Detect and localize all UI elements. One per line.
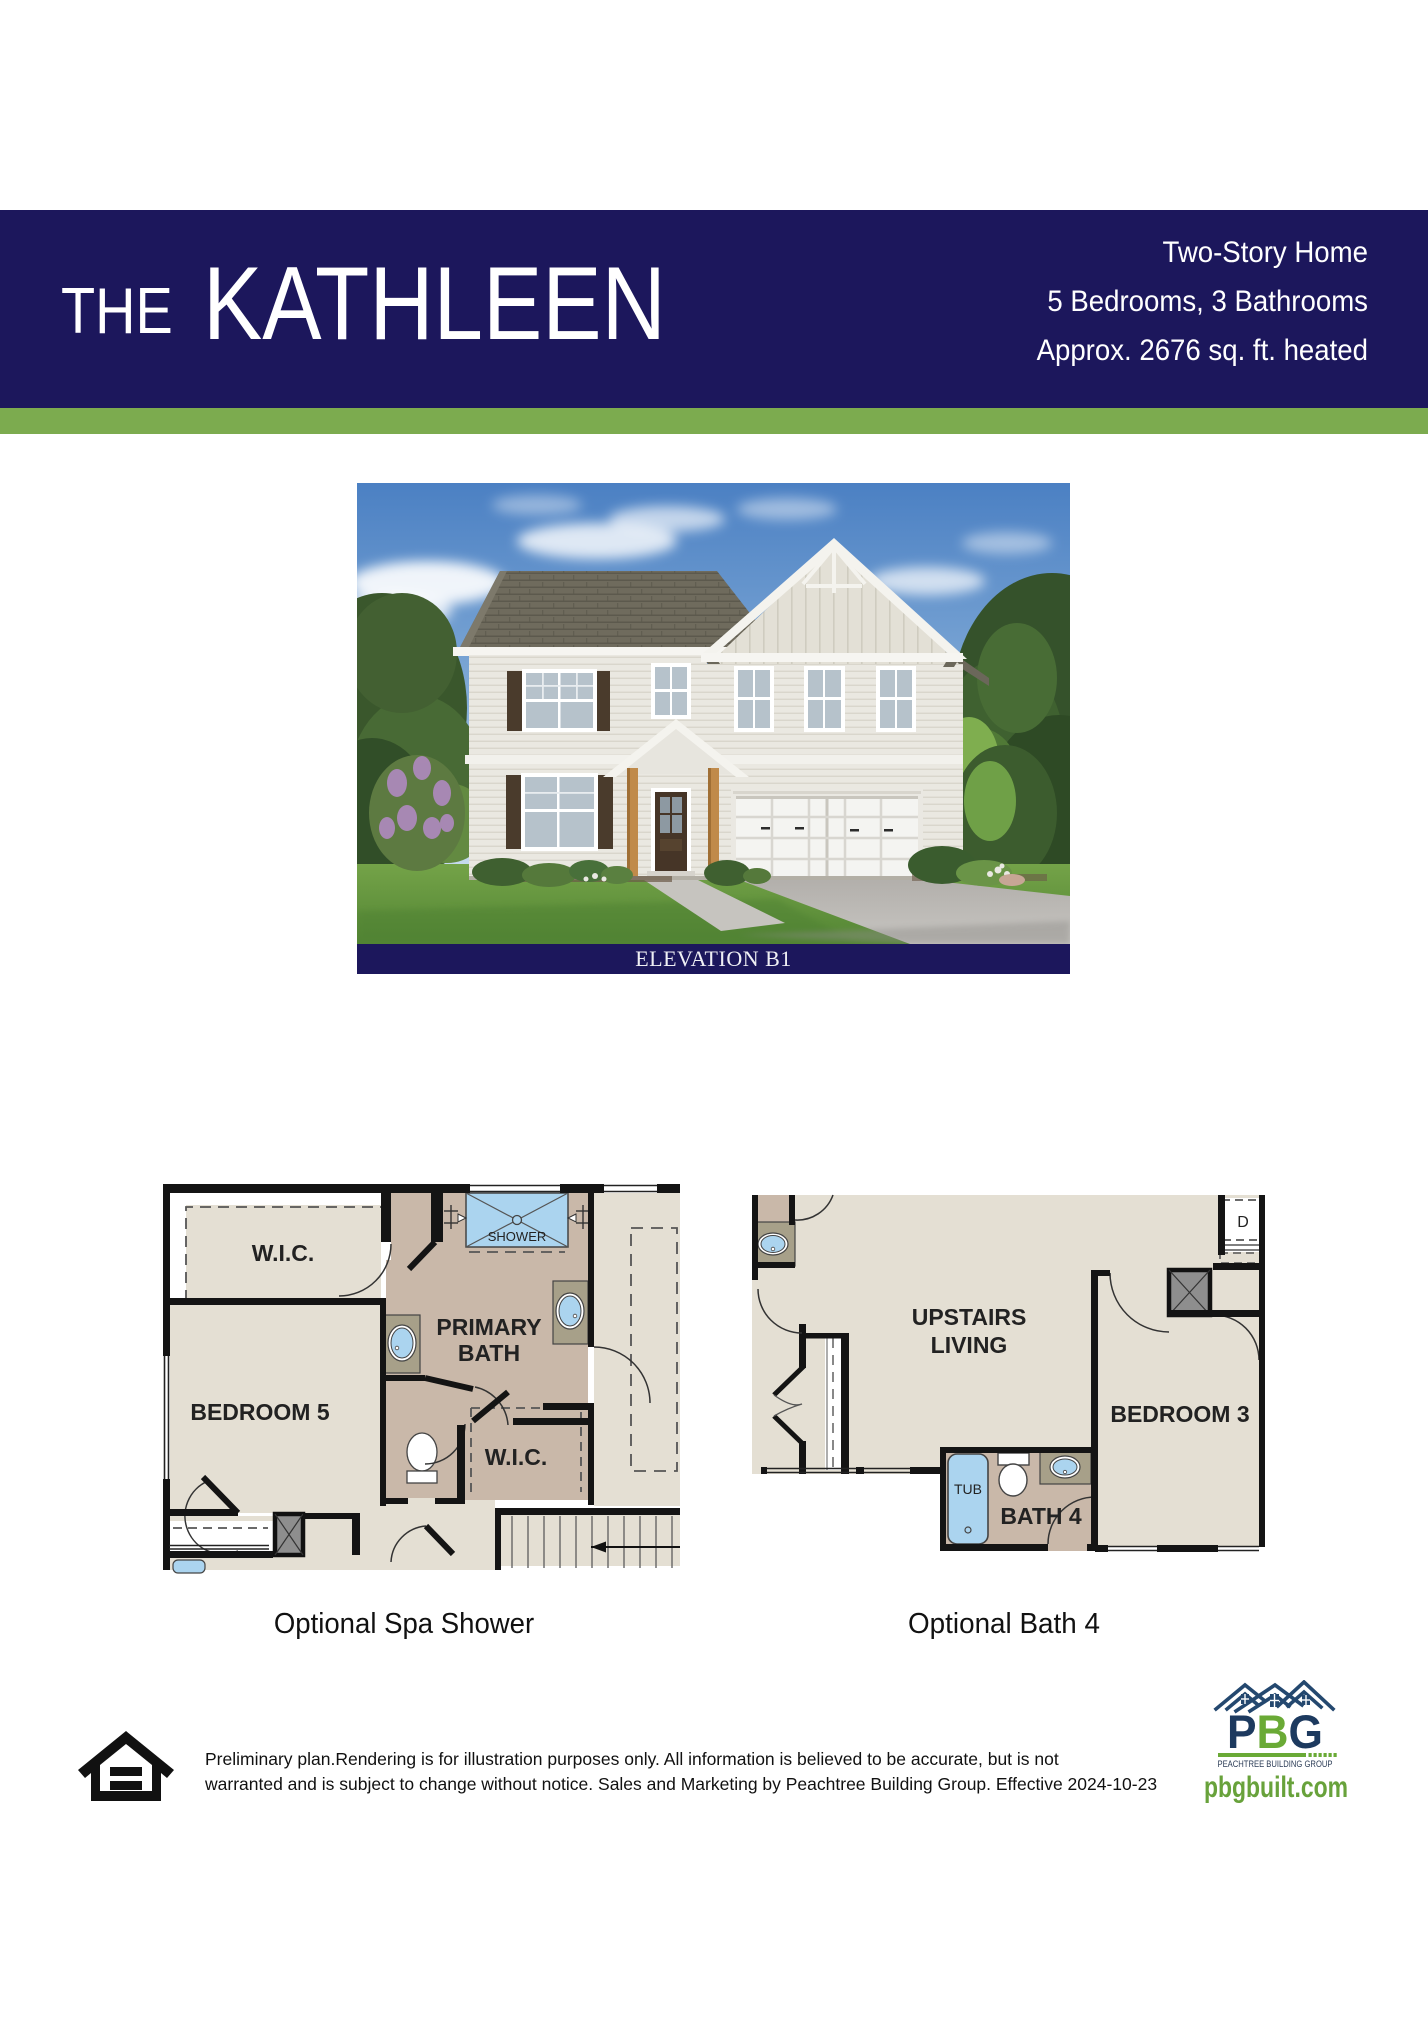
svg-text:PBG: PBG — [1227, 1705, 1323, 1758]
svg-text:BEDROOM 5: BEDROOM 5 — [190, 1399, 330, 1425]
svg-text:BATH 4: BATH 4 — [1000, 1503, 1082, 1529]
svg-text:D: D — [1237, 1214, 1249, 1231]
svg-text:UPSTAIRS: UPSTAIRS — [912, 1304, 1027, 1330]
svg-text:pbgbuilt.com: pbgbuilt.com — [1204, 1771, 1348, 1804]
svg-text:PRIMARY: PRIMARY — [436, 1314, 541, 1340]
svg-text:W.I.C.: W.I.C. — [485, 1444, 548, 1470]
svg-text:LIVING: LIVING — [931, 1332, 1008, 1358]
svg-text:TUB: TUB — [954, 1481, 982, 1497]
svg-text:W.I.C.: W.I.C. — [252, 1240, 315, 1266]
svg-text:PEACHTREE BUILDING GROUP: PEACHTREE BUILDING GROUP — [1218, 1759, 1333, 1770]
svg-text:SHOWER: SHOWER — [488, 1229, 547, 1244]
svg-text:BEDROOM 3: BEDROOM 3 — [1110, 1401, 1249, 1427]
svg-text:BATH: BATH — [458, 1340, 520, 1366]
